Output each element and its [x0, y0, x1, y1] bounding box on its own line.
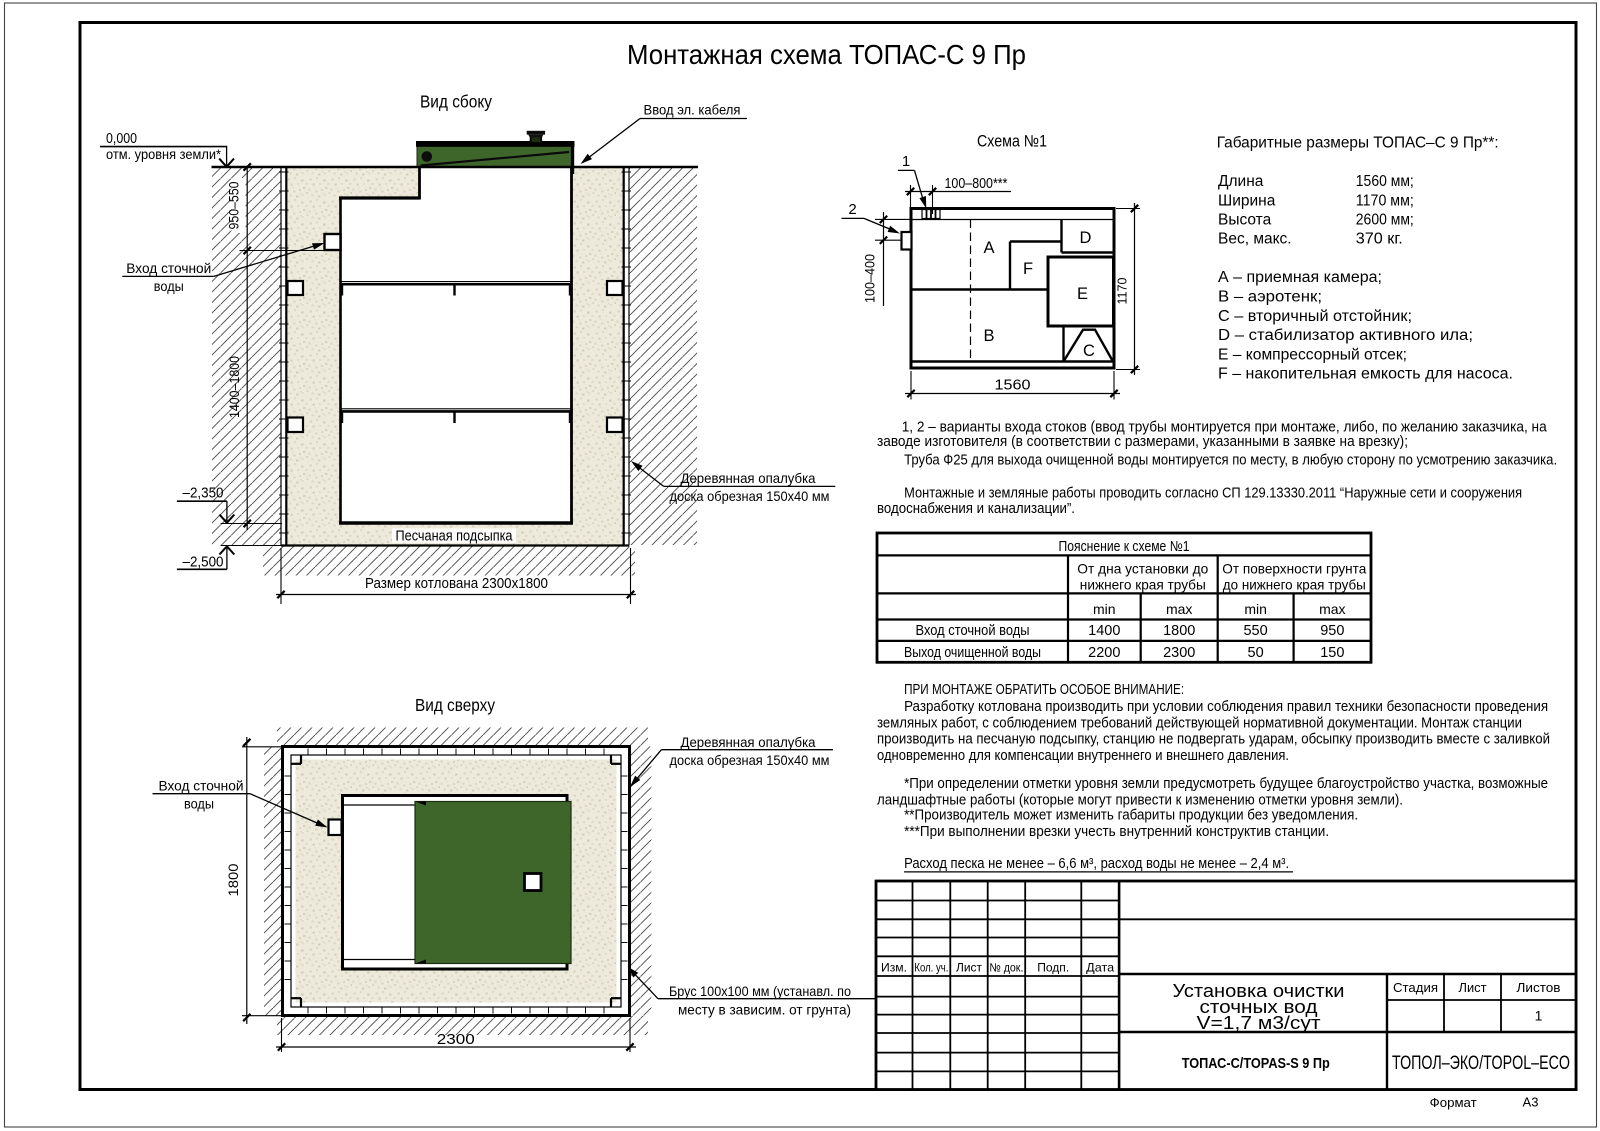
- svg-text:–2,350: –2,350: [183, 486, 224, 502]
- svg-text:1560 мм;: 1560 мм;: [1356, 173, 1414, 190]
- svg-text:max: max: [1319, 601, 1345, 617]
- svg-text:доска обрезная 150х40 мм: доска обрезная 150х40 мм: [670, 489, 830, 504]
- svg-text:1400: 1400: [1088, 623, 1120, 639]
- svg-text:Разработку котлована производи: Разработку котлована производить при усл…: [904, 699, 1548, 715]
- svg-text:Формат: Формат: [1430, 1095, 1477, 1110]
- svg-text:Деревянная опалубка: Деревянная опалубка: [681, 471, 816, 486]
- svg-text:2300: 2300: [1163, 645, 1195, 661]
- svg-text:550: 550: [1243, 623, 1267, 639]
- svg-text:Ввод эл. кабеля: Ввод эл. кабеля: [644, 103, 741, 118]
- svg-text:водоснабжения и канализации”.: водоснабжения и канализации”.: [877, 501, 1075, 517]
- svg-text:В – аэротенк;: В – аэротенк;: [1218, 289, 1322, 306]
- svg-text:min: min: [1244, 601, 1267, 617]
- svg-text:*При определении отметки уровн: *При определении отметки уровня земли пр…: [904, 776, 1548, 792]
- svg-text:Вес, макс.: Вес, макс.: [1218, 231, 1292, 248]
- svg-text:–2,500: –2,500: [183, 555, 224, 571]
- svg-text:Вид сбоку: Вид сбоку: [420, 92, 492, 112]
- svg-text:Схема №1: Схема №1: [977, 133, 1047, 151]
- svg-text:100–400: 100–400: [863, 254, 878, 303]
- svg-text:Габаритные размеры ТОПАС–С 9 П: Габаритные размеры ТОПАС–С 9 Пр**:: [1217, 135, 1499, 152]
- svg-text:Дата: Дата: [1086, 961, 1114, 975]
- svg-text:C: C: [1083, 342, 1095, 360]
- svg-text:Деревянная опалубка: Деревянная опалубка: [681, 735, 816, 750]
- svg-text:одновременно для компенсации в: одновременно для компенсации внутреннего…: [877, 748, 1289, 764]
- svg-text:Ширина: Ширина: [1218, 193, 1276, 210]
- svg-text:D – стабилизатор активного ила: D – стабилизатор активного ила;: [1218, 327, 1473, 344]
- svg-text:Монтажная схема ТОПАС-С 9 Пр: Монтажная схема ТОПАС-С 9 Пр: [627, 39, 1026, 70]
- svg-text:V=1,7 м3/сут: V=1,7 м3/сут: [1197, 1013, 1321, 1033]
- svg-text:воды: воды: [184, 797, 214, 812]
- svg-text:1400–1800: 1400–1800: [227, 356, 242, 418]
- svg-text:0,000: 0,000: [106, 131, 137, 147]
- svg-text:ТОПАС-С/TOPAS-S 9 Пр: ТОПАС-С/TOPAS-S 9 Пр: [1182, 1055, 1330, 1072]
- svg-text:Вход сточной воды: Вход сточной воды: [916, 623, 1030, 639]
- svg-text:max: max: [1166, 601, 1192, 617]
- svg-text:Лист: Лист: [956, 961, 982, 975]
- svg-text:1170 мм;: 1170 мм;: [1356, 193, 1414, 210]
- svg-text:F – накопительная емкость для: F – накопительная емкость для насоса.: [1218, 366, 1513, 383]
- svg-text:min: min: [1093, 601, 1116, 617]
- svg-text:1: 1: [1535, 1008, 1543, 1024]
- svg-text:150: 150: [1320, 645, 1344, 661]
- svg-text:2: 2: [848, 201, 856, 218]
- svg-text:50: 50: [1248, 645, 1264, 661]
- svg-text:А3: А3: [1523, 1095, 1539, 1110]
- svg-text:1800: 1800: [1163, 623, 1195, 639]
- svg-text:доска обрезная 150х40 мм: доска обрезная 150х40 мм: [670, 753, 830, 768]
- svg-text:D: D: [1080, 229, 1092, 247]
- svg-text:Лист: Лист: [1459, 980, 1487, 995]
- svg-text:От дна установки до: От дна установки до: [1077, 561, 1208, 577]
- svg-text:ландшафтные работы (которые мо: ландшафтные работы (которые могут привес…: [877, 792, 1403, 808]
- svg-text:1560: 1560: [995, 378, 1031, 394]
- svg-text:Изм.: Изм.: [881, 961, 907, 975]
- svg-text:отм. уровня земли*: отм. уровня земли*: [106, 147, 222, 162]
- svg-text:месту в зависим. от грунта): месту в зависим. от грунта): [678, 1003, 851, 1018]
- svg-text:B: B: [983, 327, 994, 345]
- svg-text:Монтажные и земляные работы пр: Монтажные и земляные работы проводить со…: [904, 486, 1522, 502]
- svg-text:Е – компрессорный отсек;: Е – компрессорный отсек;: [1218, 346, 1407, 363]
- svg-text:нижнего края трубы: нижнего края трубы: [1080, 577, 1206, 593]
- svg-text:Выход очищенной воды: Выход очищенной воды: [904, 645, 1041, 661]
- svg-text:воды: воды: [154, 279, 184, 294]
- svg-text:Вход сточной: Вход сточной: [159, 779, 244, 794]
- svg-text:950–550: 950–550: [227, 182, 242, 230]
- svg-text:***При выполнении врезки учест: ***При выполнении врезки учесть внутренн…: [904, 824, 1329, 840]
- svg-text:Подп.: Подп.: [1037, 961, 1069, 975]
- svg-text:ПРИ МОНТАЖЕ ОБРАТИТЬ ОСОБОЕ ВН: ПРИ МОНТАЖЕ ОБРАТИТЬ ОСОБОЕ ВНИМАНИЕ:: [904, 682, 1184, 698]
- svg-text:Вид сверху: Вид сверху: [415, 695, 495, 715]
- svg-text:Труба Ф25 для выхода очищенной: Труба Ф25 для выхода очищенной воды монт…: [904, 453, 1557, 469]
- svg-text:E: E: [1077, 285, 1088, 303]
- svg-text:Песчаная подсыпка: Песчаная подсыпка: [396, 529, 514, 545]
- svg-text:**Производитель может изменить: **Производитель может изменить габариты …: [904, 808, 1358, 824]
- svg-text:1: 1: [902, 153, 910, 170]
- svg-text:1170: 1170: [1115, 278, 1130, 305]
- svg-text:Пояснение к схеме №1: Пояснение к схеме №1: [1059, 539, 1190, 555]
- svg-text:ТОПОЛ–ЭКО/TOPOL–ECO: ТОПОЛ–ЭКО/TOPOL–ECO: [1392, 1053, 1570, 1074]
- svg-text:2600 мм;: 2600 мм;: [1356, 212, 1414, 229]
- svg-text:2300: 2300: [437, 1032, 475, 1048]
- svg-text:Длина: Длина: [1218, 173, 1264, 190]
- svg-text:Кол. уч.: Кол. уч.: [914, 961, 948, 975]
- svg-text:А – приемная камера;: А – приемная камера;: [1218, 269, 1382, 286]
- svg-text:950: 950: [1320, 623, 1344, 639]
- svg-text:100–800***: 100–800***: [945, 176, 1008, 192]
- svg-text:С – вторичный отстойник;: С – вторичный отстойник;: [1218, 308, 1412, 325]
- svg-text:Расход песка не менее – 6,6 м³: Расход песка не менее – 6,6 м³, расход в…: [904, 856, 1289, 872]
- svg-text:Вход сточной: Вход сточной: [126, 261, 211, 276]
- svg-text:заводе изготовителя (в соответ: заводе изготовителя (в соответствии с ра…: [877, 434, 1408, 450]
- svg-text:От поверхности грунта: От поверхности грунта: [1222, 561, 1366, 577]
- svg-text:№ док.: № док.: [989, 961, 1023, 975]
- svg-text:2200: 2200: [1088, 645, 1120, 661]
- svg-text:до нижнего края трубы: до нижнего края трубы: [1223, 577, 1366, 593]
- svg-text:Брус 100х100 мм (устанавл. по: Брус 100х100 мм (устанавл. по: [669, 984, 851, 999]
- svg-text:1800: 1800: [225, 863, 241, 896]
- svg-text:370 кг.: 370 кг.: [1356, 231, 1403, 248]
- svg-text:земляных работ, с соблюдением: земляных работ, с соблюдением требований…: [877, 715, 1522, 731]
- svg-text:Высота: Высота: [1218, 212, 1272, 229]
- svg-text:F: F: [1023, 260, 1033, 278]
- svg-text:Листов: Листов: [1517, 980, 1561, 995]
- svg-text:Размер котлована 2300x1800: Размер котлована 2300x1800: [365, 575, 548, 592]
- svg-text:производить на песчаную подсып: производить на песчаную подсыпку, станци…: [877, 732, 1550, 748]
- svg-text:A: A: [983, 239, 994, 257]
- svg-text:Стадия: Стадия: [1393, 980, 1438, 995]
